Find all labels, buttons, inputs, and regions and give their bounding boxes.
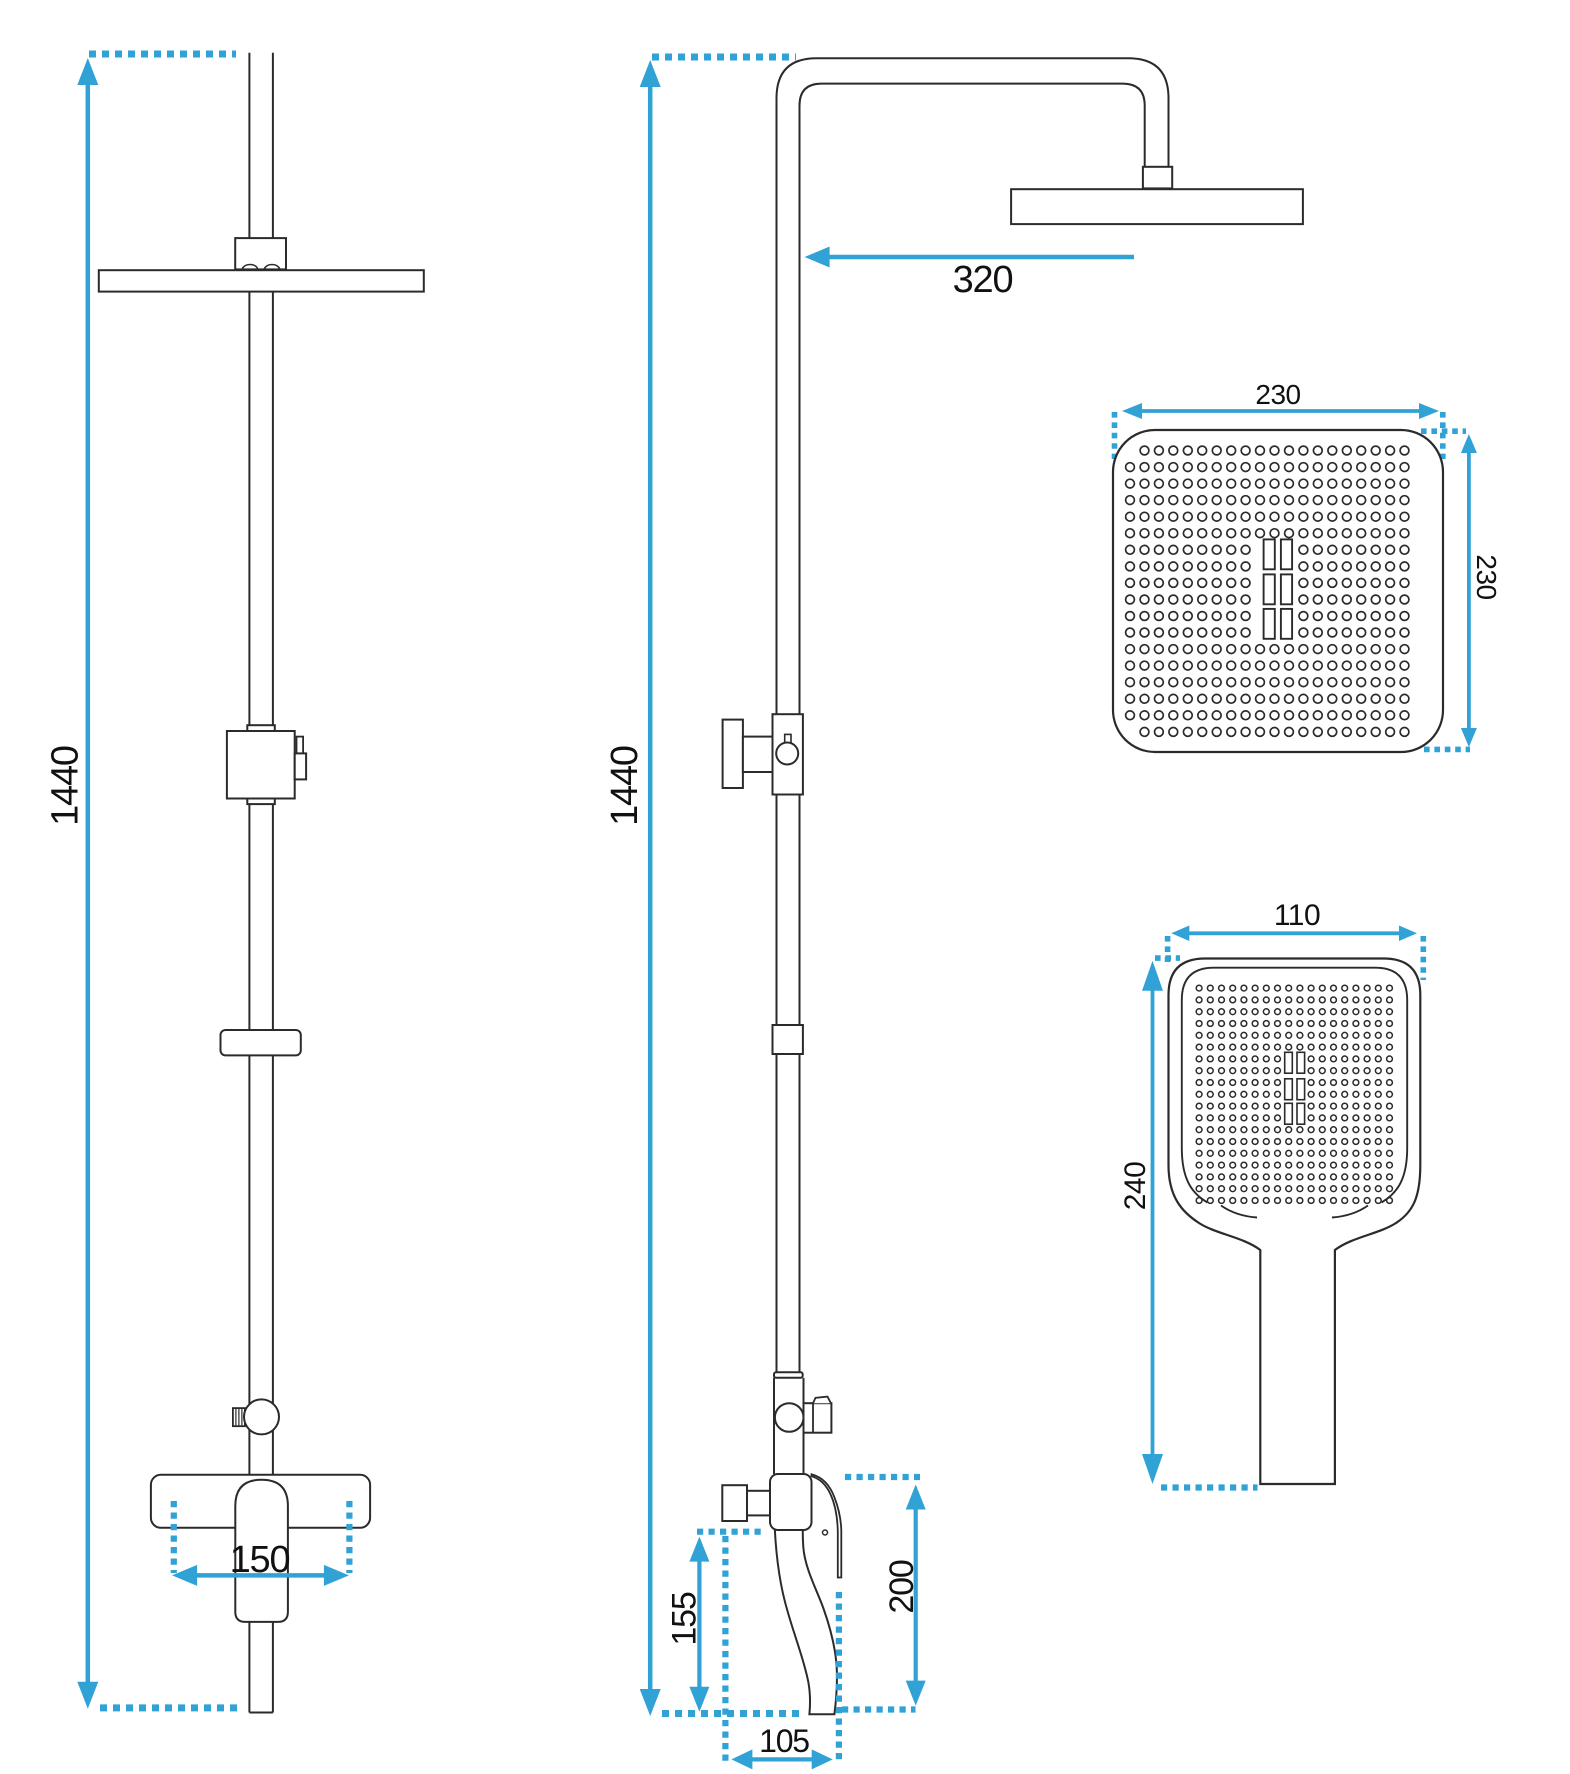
svg-text:1440: 1440 bbox=[604, 746, 646, 826]
svg-text:150: 150 bbox=[230, 1539, 290, 1581]
svg-text:155: 155 bbox=[666, 1592, 704, 1645]
svg-text:105: 105 bbox=[759, 1723, 809, 1759]
svg-text:200: 200 bbox=[883, 1560, 921, 1613]
svg-text:230: 230 bbox=[1471, 554, 1502, 599]
svg-text:230: 230 bbox=[1255, 379, 1300, 410]
svg-text:1440: 1440 bbox=[45, 746, 87, 826]
svg-text:240: 240 bbox=[1119, 1162, 1152, 1211]
svg-text:320: 320 bbox=[953, 259, 1013, 301]
svg-text:110: 110 bbox=[1274, 899, 1320, 932]
